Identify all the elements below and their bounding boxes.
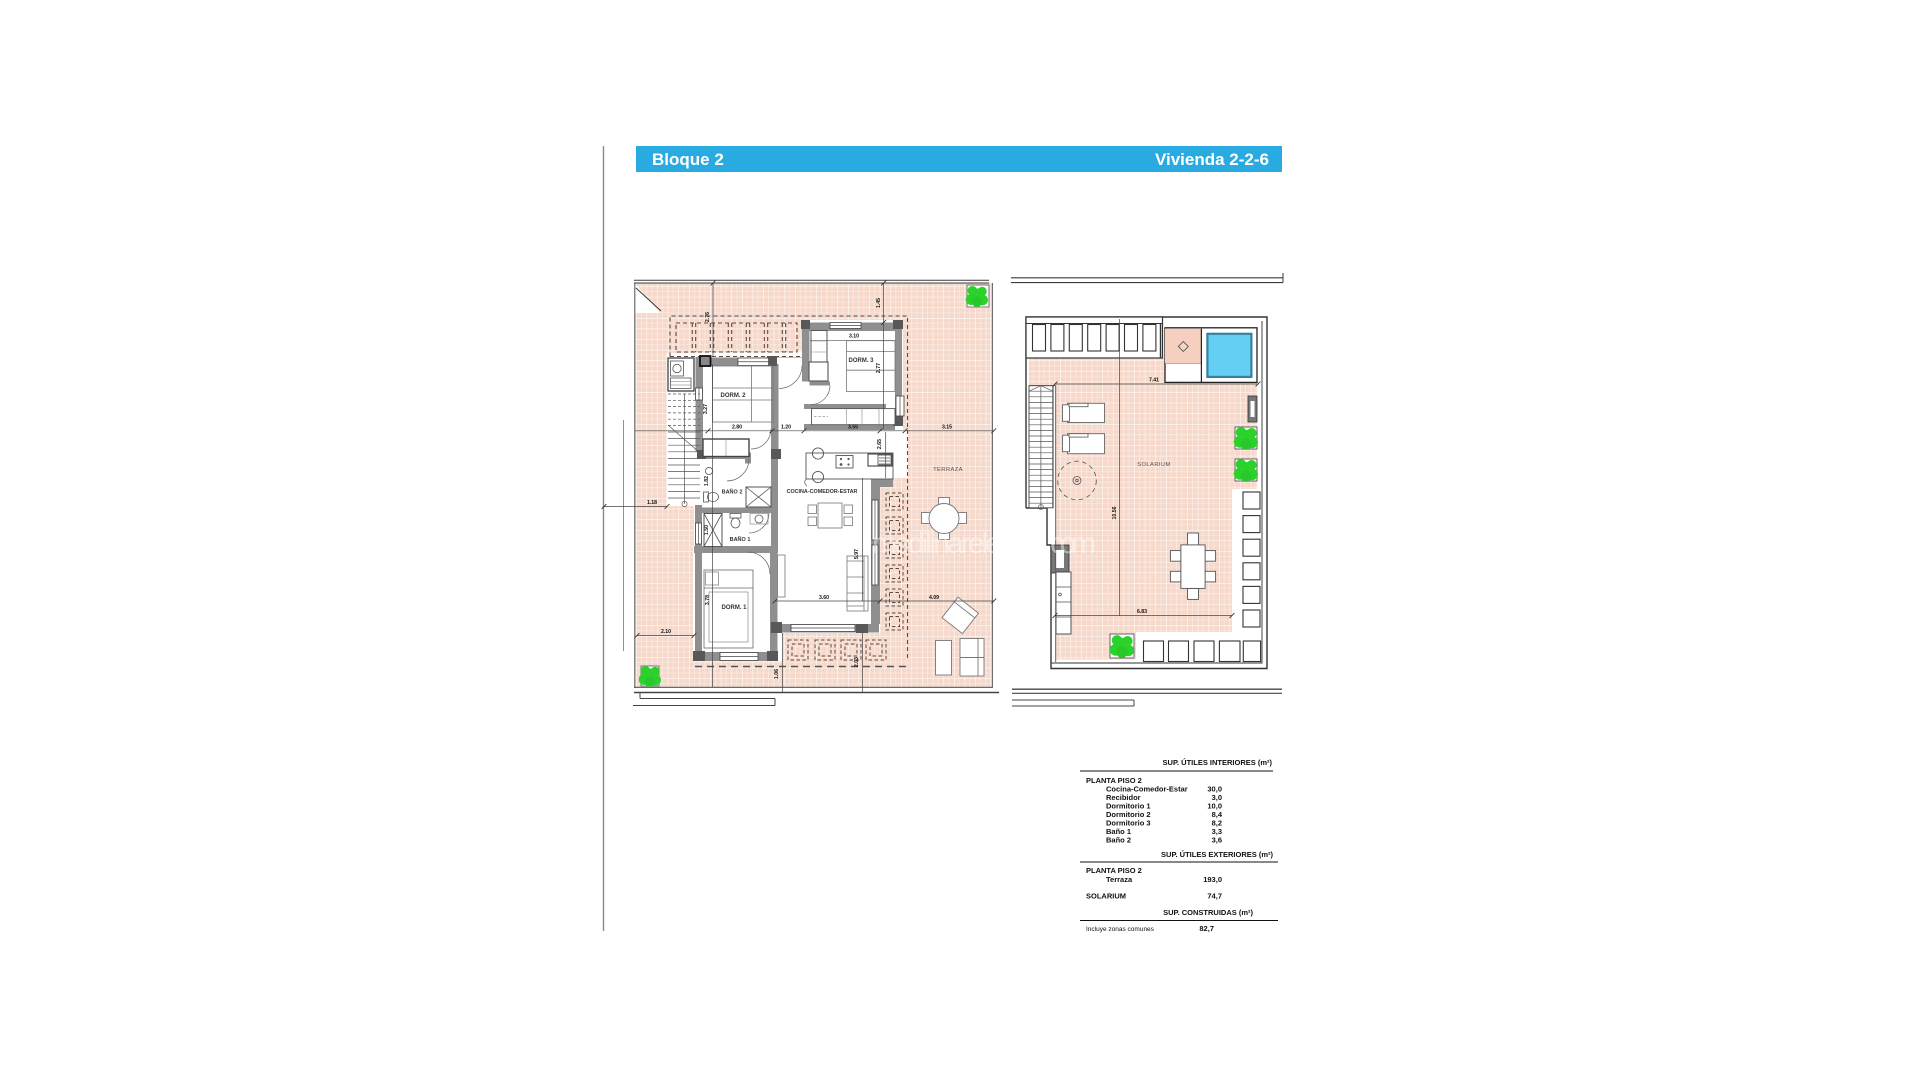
svg-text:SUP. CONSTRUIDAS (m²): SUP. CONSTRUIDAS (m²) <box>1163 908 1253 917</box>
svg-text:2.76: 2.76 <box>705 312 711 322</box>
svg-text:Terraza: Terraza <box>1106 875 1133 884</box>
svg-text:1.18: 1.18 <box>647 500 657 506</box>
svg-text:4.09: 4.09 <box>929 595 939 601</box>
svg-text:BAÑO 1: BAÑO 1 <box>730 536 751 543</box>
svg-text:1.82: 1.82 <box>704 476 710 486</box>
svg-text:SOLARIUM: SOLARIUM <box>1086 892 1126 901</box>
svg-text:82,7: 82,7 <box>1199 924 1214 933</box>
svg-text:3.10: 3.10 <box>849 334 859 340</box>
svg-text:1.06: 1.06 <box>774 669 780 679</box>
svg-text:SOLARIUM: SOLARIUM <box>1137 462 1170 468</box>
svg-text:DORM. 1: DORM. 1 <box>721 605 747 611</box>
svg-text:1.50: 1.50 <box>704 525 710 535</box>
svg-text:1.45: 1.45 <box>876 298 882 308</box>
svg-text:193,0: 193,0 <box>1203 875 1222 884</box>
svg-text:Baño 2: Baño 2 <box>1106 836 1131 845</box>
svg-text:medilinarele: medilinarele <box>872 527 1002 560</box>
svg-text:1.20: 1.20 <box>781 425 791 431</box>
svg-text:6.83: 6.83 <box>1137 609 1147 615</box>
svg-text:TERRAZA: TERRAZA <box>933 467 963 473</box>
svg-text:3,6: 3,6 <box>1212 836 1222 845</box>
svg-text:Bloque 2: Bloque 2 <box>652 150 724 169</box>
svg-text:Incluye zonas comunes: Incluye zonas comunes <box>1086 926 1155 933</box>
svg-text:DORM. 3: DORM. 3 <box>848 358 874 364</box>
svg-text:com: com <box>1050 527 1096 560</box>
svg-text:3.78: 3.78 <box>705 595 711 605</box>
svg-text:10.56: 10.56 <box>1112 506 1118 519</box>
svg-text:2.65: 2.65 <box>877 439 883 449</box>
svg-text:SUP. ÚTILES INTERIORES (m²): SUP. ÚTILES INTERIORES (m²) <box>1163 758 1273 767</box>
svg-text:74,7: 74,7 <box>1207 892 1222 901</box>
svg-text:2.10: 2.10 <box>661 629 671 635</box>
svg-text:2.03: 2.03 <box>854 657 860 667</box>
svg-text:PLANTA PISO 2: PLANTA PISO 2 <box>1086 866 1142 875</box>
svg-text:SUP. ÚTILES EXTERIORES (m²): SUP. ÚTILES EXTERIORES (m²) <box>1161 850 1273 859</box>
svg-text:3.27: 3.27 <box>703 404 709 414</box>
svg-text:BAÑO 2: BAÑO 2 <box>722 489 743 496</box>
svg-text:COCINA-COMEDOR-ESTAR: COCINA-COMEDOR-ESTAR <box>787 489 858 495</box>
svg-text:2.80: 2.80 <box>732 425 742 431</box>
svg-text:DORM. 2: DORM. 2 <box>720 393 746 399</box>
svg-text:2.77: 2.77 <box>876 363 882 373</box>
svg-text:Vivienda 2-2-6: Vivienda 2-2-6 <box>1155 150 1269 169</box>
svg-text:7.41: 7.41 <box>1149 378 1159 384</box>
svg-text:3.55: 3.55 <box>848 425 858 431</box>
svg-text:3.15: 3.15 <box>942 425 952 431</box>
svg-text:3.60: 3.60 <box>819 595 829 601</box>
svg-text:5.97: 5.97 <box>854 549 860 559</box>
